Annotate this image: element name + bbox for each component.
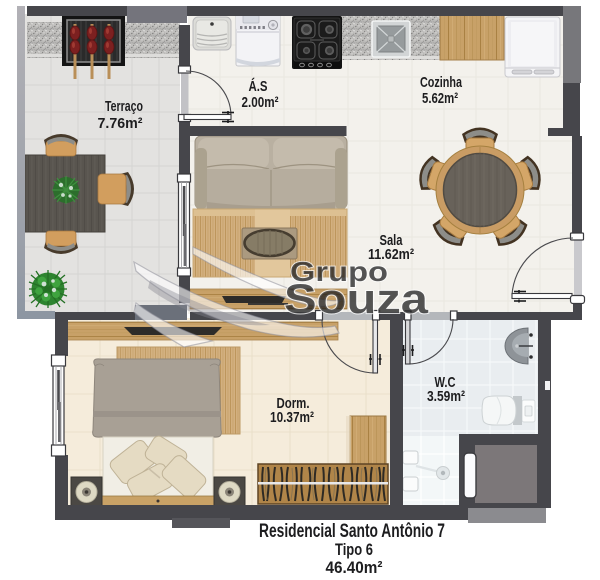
svg-text:7.76m²: 7.76m² <box>98 115 143 132</box>
svg-text:46.40m²: 46.40m² <box>326 558 383 577</box>
svg-text:Tipo 6: Tipo 6 <box>335 540 373 559</box>
svg-text:Residencial Santo Antônio 7: Residencial Santo Antônio 7 <box>259 521 445 542</box>
svg-text:Cozinha: Cozinha <box>420 74 462 91</box>
svg-text:Terraço: Terraço <box>105 98 143 115</box>
svg-text:2.00m²: 2.00m² <box>242 94 279 111</box>
svg-text:5.62m²: 5.62m² <box>422 90 458 107</box>
svg-text:Á.S: Á.S <box>249 78 268 95</box>
svg-text:Souza: Souza <box>284 275 429 322</box>
svg-text:10.37m²: 10.37m² <box>270 409 314 426</box>
svg-text:3.59m²: 3.59m² <box>427 388 465 405</box>
